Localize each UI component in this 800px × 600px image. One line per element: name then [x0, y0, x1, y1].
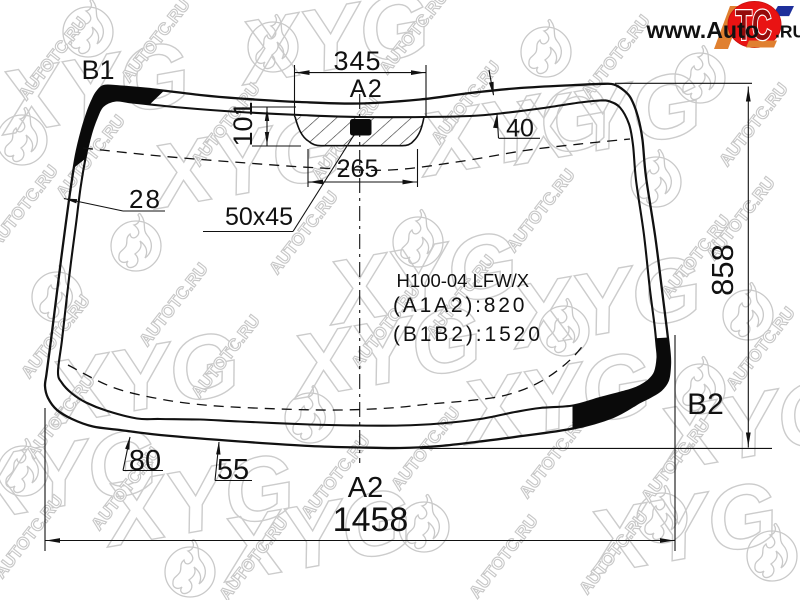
- svg-text:(A1A2):820: (A1A2):820: [393, 294, 527, 317]
- svg-text:345: 345: [333, 46, 381, 76]
- svg-text:40: 40: [506, 115, 534, 143]
- svg-text:A2: A2: [348, 472, 383, 504]
- svg-text:.RU: .RU: [775, 22, 800, 42]
- svg-text:B2: B2: [687, 388, 724, 421]
- svg-text:55: 55: [217, 454, 249, 486]
- svg-text:B1: B1: [81, 55, 114, 85]
- svg-text:50x45: 50x45: [225, 203, 293, 231]
- svg-text:101: 101: [228, 101, 258, 146]
- svg-text:28: 28: [129, 184, 162, 214]
- svg-text:H100-04 LFW/X: H100-04 LFW/X: [397, 270, 530, 291]
- svg-text:80: 80: [129, 445, 161, 477]
- svg-text:858: 858: [705, 244, 740, 296]
- svg-text:www.Auto: www.Auto: [646, 17, 759, 43]
- svg-text:1458: 1458: [333, 501, 409, 539]
- svg-text:(B1B2):1520: (B1B2):1520: [393, 323, 543, 346]
- svg-text:A2: A2: [350, 75, 384, 103]
- svg-text:265: 265: [337, 155, 379, 183]
